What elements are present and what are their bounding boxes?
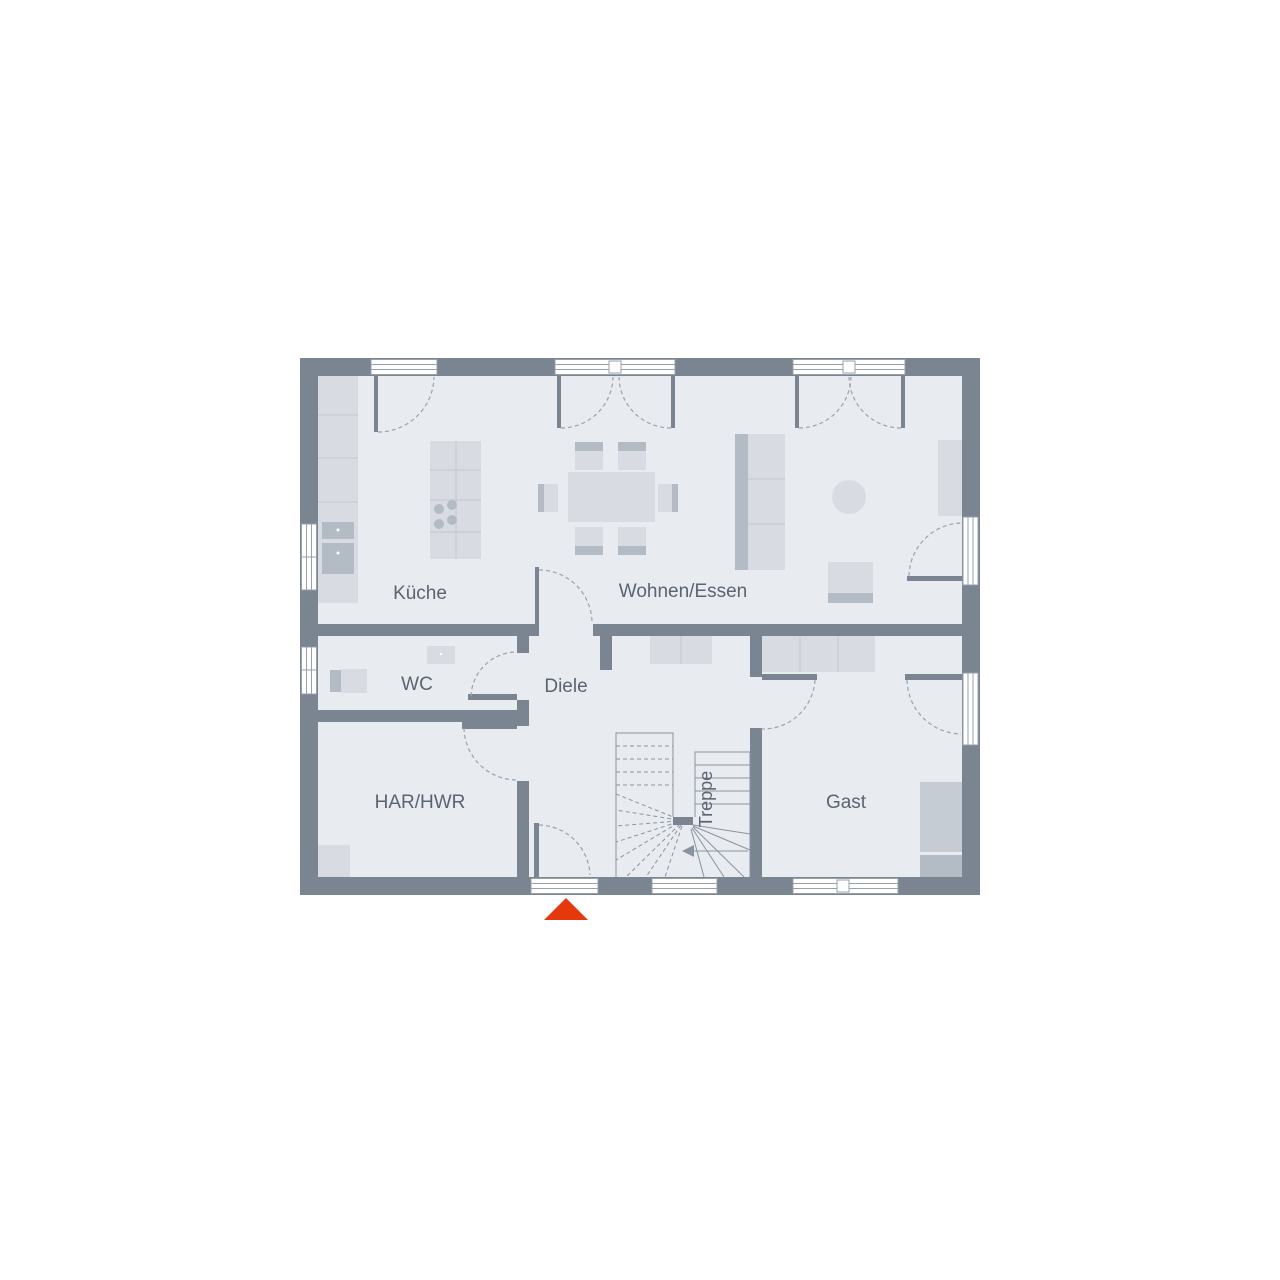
kitchen-island [430,441,481,559]
sideboard [938,440,962,516]
wc-toilet [330,669,367,693]
room-label-gast: Gast [826,792,867,813]
room-label-wohnen-essen: Wohnen/Essen [619,581,748,602]
window-bottom-entrance-door [531,879,598,894]
guest-bed [920,782,962,877]
room-label-har-hwr: HAR/HWR [375,792,466,813]
utility-fixture [318,845,350,877]
window-bottom-stair [652,879,717,894]
room-label-diele: Diele [544,676,587,697]
round-table [832,480,866,514]
wc-sink [427,646,455,664]
floor-plan: Treppe Küche Wohnen/Essen WC Diele HAR/H… [300,358,980,928]
window-right-guest-door [963,673,978,745]
hall-wardrobe [650,636,712,664]
shelf-unit [735,434,785,570]
entrance-marker-triangle [544,898,588,920]
guest-wardrobe [762,636,875,672]
window-left-wc [302,647,317,694]
room-label-wc: WC [401,674,433,695]
window-top-kitchen-door [371,360,437,375]
window-left-kitchen [302,524,317,590]
room-label-kueche: Küche [393,583,447,604]
window-bottom-guest [793,879,898,894]
page: Treppe Küche Wohnen/Essen WC Diele HAR/H… [0,0,1280,1280]
floor-plan-drawing: Treppe Küche Wohnen/Essen WC Diele HAR/H… [300,358,980,928]
window-right-living-door [963,517,978,585]
armchair [828,562,873,603]
window-top-center-french-door [555,360,675,375]
room-label-treppe: Treppe [696,771,716,827]
window-top-right-french-door [793,360,905,375]
kitchen-counter [318,376,358,603]
